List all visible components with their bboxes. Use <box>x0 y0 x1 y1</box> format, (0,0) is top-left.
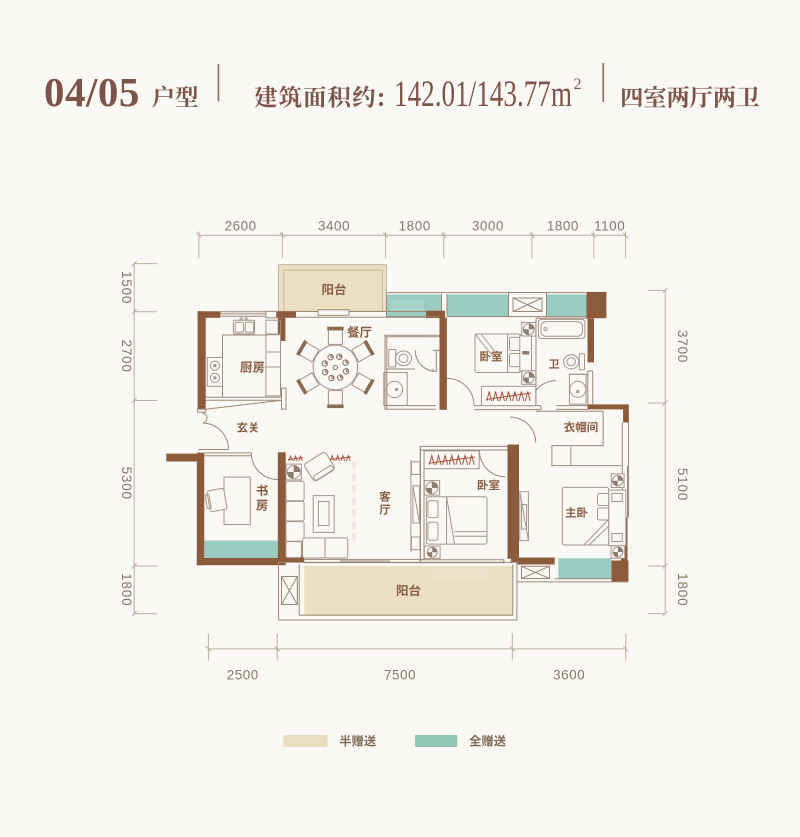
svg-text:1100: 1100 <box>594 219 625 234</box>
svg-text:1800: 1800 <box>675 573 690 606</box>
svg-text:2500: 2500 <box>227 668 259 683</box>
svg-text:2600: 2600 <box>225 219 257 234</box>
svg-text:2: 2 <box>574 76 582 93</box>
svg-text:7500: 7500 <box>384 668 416 683</box>
svg-text:2700: 2700 <box>119 339 134 372</box>
svg-text:142.01/143.77m: 142.01/143.77m <box>394 74 572 115</box>
svg-text:1800: 1800 <box>119 573 134 606</box>
svg-text:3700: 3700 <box>675 330 690 363</box>
svg-text:5100: 5100 <box>675 468 690 501</box>
svg-text:3400: 3400 <box>318 219 350 234</box>
svg-text:3000: 3000 <box>472 219 504 234</box>
svg-text:3600: 3600 <box>553 668 585 683</box>
svg-text:1500: 1500 <box>119 271 134 304</box>
svg-text:5300: 5300 <box>119 467 134 500</box>
svg-text:04/05: 04/05 <box>44 69 140 115</box>
svg-text:1800: 1800 <box>399 219 431 234</box>
svg-text:1800: 1800 <box>547 219 579 234</box>
